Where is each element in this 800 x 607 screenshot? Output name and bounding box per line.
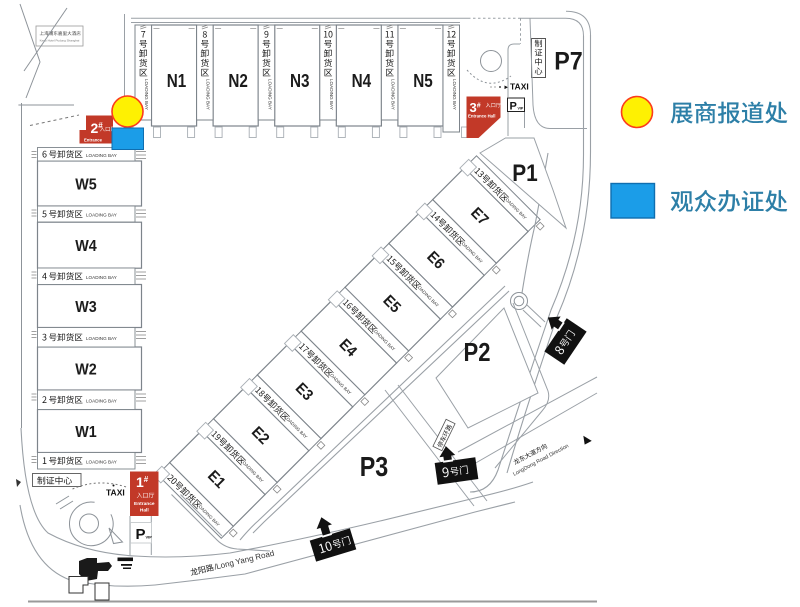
svg-text:LOADING BAY: LOADING BAY xyxy=(206,79,211,110)
svg-text:Hall: Hall xyxy=(140,508,149,514)
svg-text:LOADING BAY: LOADING BAY xyxy=(86,459,117,464)
svg-text:LOADING BAY: LOADING BAY xyxy=(267,79,272,110)
svg-text:P: P xyxy=(510,101,517,113)
svg-text:LOADING BAY: LOADING BAY xyxy=(86,213,117,218)
svg-text:LOADING BAY: LOADING BAY xyxy=(86,398,117,403)
svg-text:N1: N1 xyxy=(167,70,187,91)
svg-text:LOADING BAY: LOADING BAY xyxy=(86,336,117,341)
svg-text:W3: W3 xyxy=(75,299,97,316)
svg-text:Entrance: Entrance xyxy=(84,138,103,143)
svg-text:LOADING BAY: LOADING BAY xyxy=(390,79,395,110)
svg-text:TAXI: TAXI xyxy=(510,82,529,92)
svg-text:N2: N2 xyxy=(228,70,248,91)
svg-text:N3: N3 xyxy=(290,70,310,91)
svg-text:P: P xyxy=(136,526,146,543)
svg-text:P1: P1 xyxy=(512,160,538,187)
svg-text:P2: P2 xyxy=(464,337,491,367)
svg-text:Entrance: Entrance xyxy=(134,501,155,507)
svg-text:W1: W1 xyxy=(75,424,97,441)
svg-text:W2: W2 xyxy=(75,362,97,379)
svg-text:VIP: VIP xyxy=(146,535,153,540)
svg-text:LOADING BAY: LOADING BAY xyxy=(329,79,334,110)
svg-text:Entrance Hall: Entrance Hall xyxy=(468,114,495,119)
svg-text:VIP: VIP xyxy=(518,107,524,111)
svg-text:W4: W4 xyxy=(75,238,97,255)
svg-text:N5: N5 xyxy=(413,70,433,91)
svg-text:LOADING BAY: LOADING BAY xyxy=(452,79,457,110)
svg-text:LOADING BAY: LOADING BAY xyxy=(144,79,149,110)
svg-text:LOADING BAY: LOADING BAY xyxy=(86,153,117,158)
svg-text:P7: P7 xyxy=(554,48,583,76)
svg-text:LOADING BAY: LOADING BAY xyxy=(86,275,117,280)
svg-text:P3: P3 xyxy=(360,451,389,482)
svg-text:N4: N4 xyxy=(352,70,372,91)
svg-text:TAXI: TAXI xyxy=(106,488,125,498)
svg-text:W5: W5 xyxy=(75,177,97,194)
